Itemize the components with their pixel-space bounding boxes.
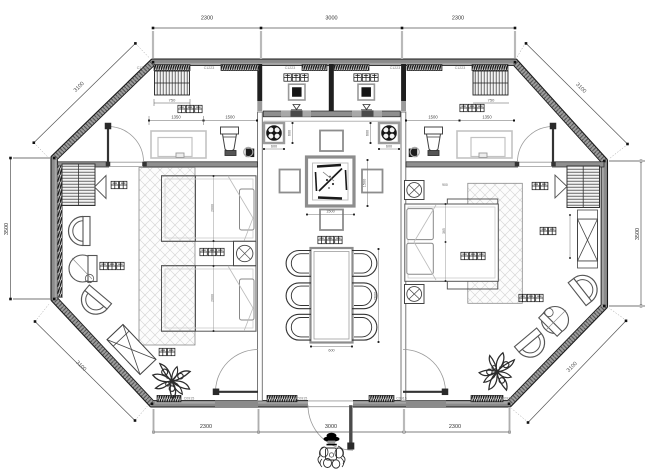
svg-text:C0915: C0915 <box>502 397 513 401</box>
svg-text:2300: 2300 <box>201 16 213 22</box>
svg-text:1500: 1500 <box>225 115 235 120</box>
svg-text:2300: 2300 <box>452 16 464 22</box>
svg-text:C0915: C0915 <box>184 397 195 401</box>
svg-text:C0915: C0915 <box>396 397 407 401</box>
svg-text:600: 600 <box>386 145 392 149</box>
svg-text:C1223: C1223 <box>390 66 401 70</box>
svg-text:750: 750 <box>169 98 176 103</box>
svg-text:900: 900 <box>442 183 448 187</box>
svg-text:2000: 2000 <box>211 294 215 302</box>
svg-text:C1223: C1223 <box>285 66 296 70</box>
svg-text:1350: 1350 <box>482 115 492 120</box>
svg-text:750: 750 <box>488 98 495 103</box>
svg-text:3000: 3000 <box>325 424 337 430</box>
svg-text:3000: 3000 <box>325 16 337 22</box>
svg-text:2300: 2300 <box>200 424 212 430</box>
svg-text:C0915: C0915 <box>297 397 308 401</box>
svg-text:600: 600 <box>328 349 334 353</box>
svg-text:2300: 2300 <box>449 424 461 430</box>
svg-text:C1223: C1223 <box>317 66 328 70</box>
svg-text:C1223: C1223 <box>455 66 466 70</box>
svg-text:2600: 2600 <box>374 292 378 300</box>
svg-text:1500: 1500 <box>326 210 334 214</box>
svg-text:C1223: C1223 <box>204 66 215 70</box>
svg-text:3500: 3500 <box>635 228 641 240</box>
svg-text:2000: 2000 <box>211 204 215 212</box>
svg-text:1500: 1500 <box>428 115 438 120</box>
svg-text:3500: 3500 <box>4 223 10 235</box>
svg-text:C1223: C1223 <box>137 66 148 70</box>
svg-text:1350: 1350 <box>171 115 181 120</box>
svg-text:600: 600 <box>366 130 370 136</box>
svg-text:600: 600 <box>271 145 277 149</box>
svg-text:600: 600 <box>288 130 292 136</box>
svg-text:1500: 1500 <box>363 179 367 187</box>
